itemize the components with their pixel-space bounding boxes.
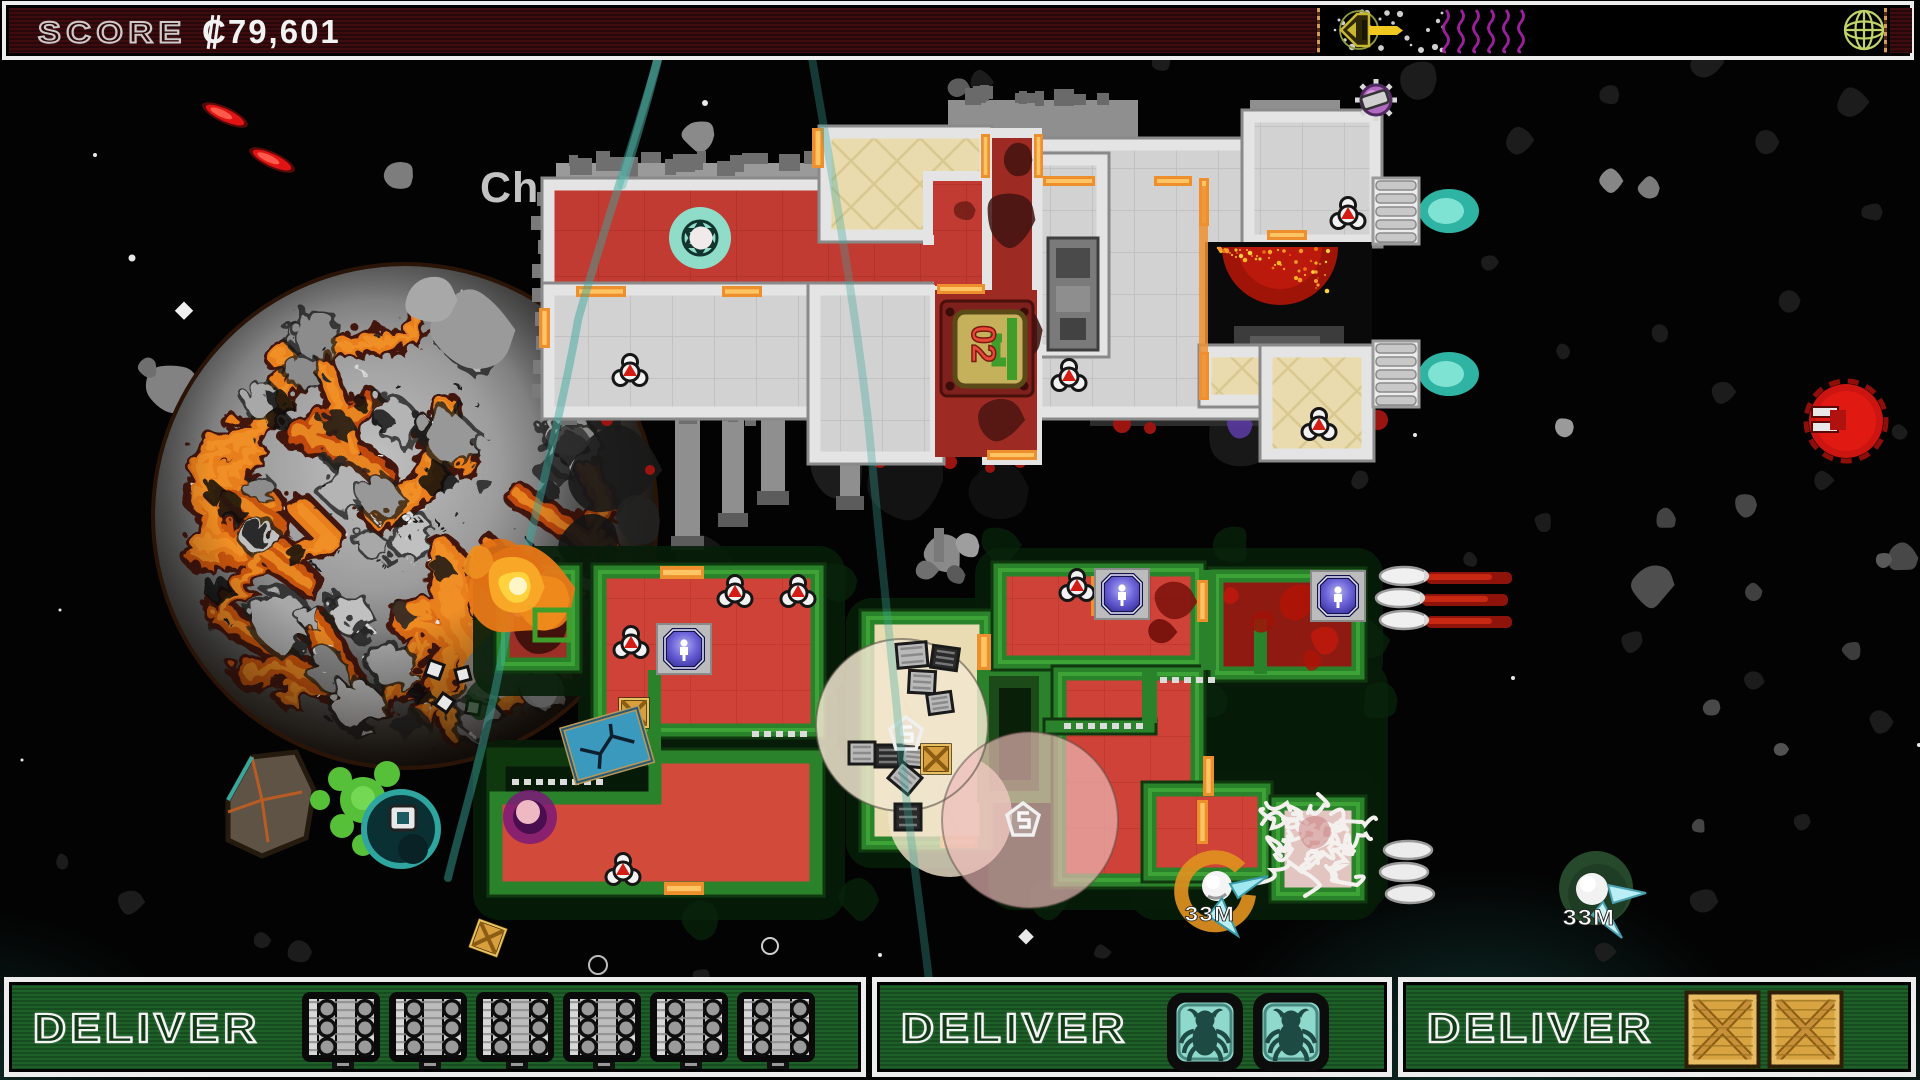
svg-text:02: 02 — [964, 325, 1002, 363]
